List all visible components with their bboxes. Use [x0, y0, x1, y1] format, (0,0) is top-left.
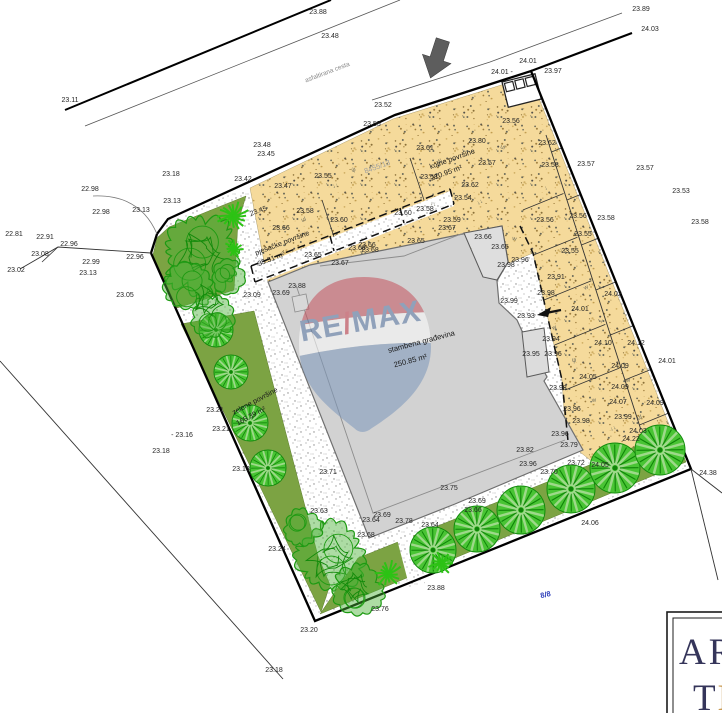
svg-text:23.96: 23.96 [544, 351, 562, 358]
svg-text:23.54: 23.54 [454, 195, 472, 202]
svg-text:23.13: 23.13 [79, 270, 97, 277]
svg-text:23.58: 23.58 [296, 208, 314, 215]
svg-text:23.56: 23.56 [502, 118, 520, 125]
svg-text:23.53: 23.53 [672, 188, 690, 195]
svg-text:23.24: 23.24 [268, 546, 286, 553]
svg-text:24.09: 24.09 [611, 363, 629, 370]
svg-text:TE: TE [693, 678, 722, 713]
svg-text:23.76: 23.76 [371, 606, 389, 613]
svg-text:23.69: 23.69 [468, 498, 486, 505]
svg-text:23.98: 23.98 [537, 290, 555, 297]
svg-text:23.78: 23.78 [395, 518, 413, 525]
svg-text:23.60: 23.60 [330, 217, 348, 224]
svg-text:23.65: 23.65 [407, 238, 425, 245]
svg-text:23.21: 23.21 [212, 426, 230, 433]
svg-text:23.80: 23.80 [468, 138, 486, 145]
svg-text:24.12: 24.12 [627, 340, 645, 347]
svg-text:23.65: 23.65 [304, 252, 322, 259]
svg-text:24.22: 24.22 [622, 436, 640, 443]
svg-text:23.68: 23.68 [357, 532, 375, 539]
svg-text:asfaltirana cesta: asfaltirana cesta [304, 61, 351, 85]
svg-text:23.66: 23.66 [474, 234, 492, 241]
svg-text:23.94: 23.94 [542, 336, 560, 343]
svg-text:23.98: 23.98 [549, 385, 567, 392]
svg-text:23.95: 23.95 [522, 351, 540, 358]
svg-text:24.09: 24.09 [646, 400, 664, 407]
svg-text:23.72: 23.72 [567, 460, 585, 467]
svg-text:23.58: 23.58 [541, 162, 559, 169]
svg-text:24.01 -: 24.01 - [491, 69, 513, 76]
svg-text:23.45: 23.45 [257, 151, 275, 158]
svg-text:22.96: 22.96 [60, 241, 78, 248]
svg-text:23.55: 23.55 [363, 121, 381, 128]
svg-text:23.96: 23.96 [563, 406, 581, 413]
svg-text:ARH: ARH [679, 632, 722, 673]
svg-text:- 23.16: - 23.16 [171, 432, 193, 439]
svg-text:23.13: 23.13 [232, 466, 250, 473]
svg-text:23.09: 23.09 [243, 292, 261, 299]
svg-text:23.18: 23.18 [162, 171, 180, 178]
svg-text:23.82: 23.82 [516, 447, 534, 454]
svg-text:22.91: 22.91 [36, 234, 54, 241]
svg-text:23.88: 23.88 [427, 585, 445, 592]
svg-text:22.81: 22.81 [5, 231, 23, 238]
svg-text:23.96: 23.96 [551, 431, 569, 438]
svg-text:23.71: 23.71 [319, 469, 337, 476]
svg-text:22.96: 22.96 [126, 254, 144, 261]
svg-text:23.57: 23.57 [636, 165, 654, 172]
svg-text:23.79: 23.79 [560, 442, 578, 449]
svg-text:23.42: 23.42 [234, 176, 252, 183]
svg-text:23.89: 23.89 [632, 6, 650, 13]
svg-text:23.69: 23.69 [272, 290, 290, 297]
svg-text:23.57: 23.57 [478, 160, 496, 167]
svg-text:23.63: 23.63 [310, 508, 328, 515]
svg-text:23.66: 23.66 [272, 225, 290, 232]
svg-text:24.03: 24.03 [629, 428, 647, 435]
svg-text:8/8: 8/8 [539, 589, 551, 600]
svg-text:23.02: 23.02 [7, 267, 25, 274]
svg-text:23.97: 23.97 [544, 68, 562, 75]
svg-text:23.56: 23.56 [536, 217, 554, 224]
svg-text:23.69: 23.69 [373, 512, 391, 519]
svg-text:23.98: 23.98 [572, 418, 590, 425]
svg-text:24.01: 24.01 [658, 358, 676, 365]
svg-text:23.56: 23.56 [569, 213, 587, 220]
svg-text:23.66: 23.66 [464, 507, 482, 514]
svg-text:23.57: 23.57 [577, 161, 595, 168]
svg-text:23.20: 23.20 [300, 627, 318, 634]
svg-text:23.18: 23.18 [265, 667, 283, 674]
svg-text:23.13: 23.13 [132, 207, 150, 214]
svg-text:23.55: 23.55 [314, 173, 332, 180]
svg-text:22.98: 22.98 [92, 209, 110, 216]
svg-text:23.60: 23.60 [394, 210, 412, 217]
svg-text:23.65: 23.65 [491, 244, 509, 251]
svg-text:23.64: 23.64 [421, 522, 439, 529]
svg-text:24.07: 24.07 [609, 399, 627, 406]
svg-text:24.05: 24.05 [579, 374, 597, 381]
svg-text:23.48: 23.48 [253, 142, 271, 149]
svg-text:23.11: 23.11 [62, 97, 79, 104]
svg-text:22.99: 22.99 [82, 259, 100, 266]
svg-text:24.02: 24.02 [604, 291, 622, 298]
svg-text:23.67: 23.67 [331, 260, 349, 267]
svg-text:23.21: 23.21 [206, 407, 224, 414]
svg-text:23.48: 23.48 [321, 33, 339, 40]
svg-text:24.05: 24.05 [591, 462, 609, 469]
svg-text:22.98: 22.98 [81, 186, 99, 193]
svg-text:23.58: 23.58 [691, 219, 709, 226]
svg-text:23.55: 23.55 [561, 248, 579, 255]
svg-text:23.62: 23.62 [538, 140, 556, 147]
svg-text:23.88: 23.88 [309, 9, 327, 16]
svg-text:23.62: 23.62 [461, 182, 479, 189]
svg-text:23.68: 23.68 [361, 247, 379, 254]
svg-text:24.09: 24.09 [611, 384, 629, 391]
svg-text:23.91: 23.91 [547, 274, 565, 281]
svg-text:23.70: 23.70 [540, 469, 558, 476]
svg-text:23.99: 23.99 [500, 298, 518, 305]
svg-text:24.06: 24.06 [581, 520, 599, 527]
svg-text:23.08: 23.08 [31, 251, 49, 258]
svg-text:24.03: 24.03 [641, 26, 659, 33]
svg-text:23.61: 23.61 [416, 145, 434, 152]
svg-text:23.93: 23.93 [517, 313, 535, 320]
svg-text:23.18: 23.18 [152, 448, 170, 455]
svg-text:23.58: 23.58 [597, 215, 615, 222]
svg-text:23.75: 23.75 [440, 485, 458, 492]
svg-text:23.99: 23.99 [614, 414, 632, 421]
svg-text:24.38: 24.38 [699, 470, 717, 477]
svg-text:23.05: 23.05 [116, 292, 134, 299]
svg-text:23.88: 23.88 [288, 283, 306, 290]
svg-text:24.10: 24.10 [594, 340, 612, 347]
svg-text:23.55: 23.55 [574, 231, 592, 238]
svg-text:23.58: 23.58 [416, 206, 434, 213]
svg-text:23.52: 23.52 [374, 102, 392, 109]
svg-text:24.01: 24.01 [571, 306, 589, 313]
svg-text:23.47: 23.47 [274, 183, 292, 190]
svg-text:23.98: 23.98 [497, 262, 515, 269]
svg-text:24.01: 24.01 [519, 58, 537, 65]
svg-text:23.96: 23.96 [519, 461, 537, 468]
svg-text:23.59: 23.59 [443, 217, 461, 224]
svg-text:23.67: 23.67 [438, 225, 456, 232]
svg-text:ψ: ψ [572, 358, 576, 364]
svg-text:23.13: 23.13 [163, 198, 181, 205]
